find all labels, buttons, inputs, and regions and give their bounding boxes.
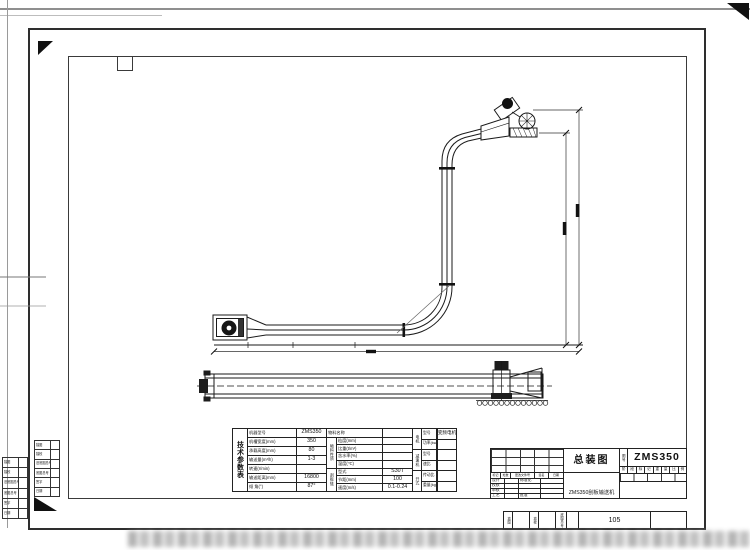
row-label: 型号: [422, 429, 436, 440]
blurred-watermark-strip: [128, 531, 750, 547]
reducer-group-label: 减速机: [413, 450, 421, 471]
table-row: 温度(℃): [337, 461, 412, 469]
sig-blank: [505, 489, 519, 493]
margin-row-label: 描图: [3, 458, 18, 467]
margin-row-label: 底图总号: [35, 469, 50, 477]
margin-row: 旧底图总号: [35, 460, 59, 469]
table-row: 承载高度(mm)80: [248, 447, 326, 456]
table-row: 输送距离(mm)16800: [248, 474, 326, 483]
tech-table-material-section: 物料名称 物料性质 刮板链 粒度(mm) 比重(t/m³) 含水率(%) 温度(…: [326, 429, 412, 491]
row-value: ZMS350: [296, 429, 326, 437]
sig-blank: [505, 479, 519, 483]
row-label: 输送量(m³/h): [248, 456, 296, 464]
margin-cell-blank: [651, 512, 686, 529]
rev-header-cell: 签名: [535, 473, 549, 478]
bottom-margin-strip: 描图 描校 底图总号 105: [503, 511, 687, 530]
chain-group-label: 刮板链: [327, 469, 336, 491]
sig-label: 工艺: [491, 494, 505, 498]
rev-header-cell: 更改文件号: [511, 473, 535, 478]
stage-mark-row: 阶 段 标 记 重 量 比 例: [620, 466, 686, 473]
margin-row: 底图总号: [35, 469, 59, 478]
row-value: 1-3: [296, 456, 326, 464]
row-value: [382, 445, 412, 452]
margin-row: 签字: [35, 478, 59, 487]
row-value: [382, 453, 412, 460]
margin-row-blank: [50, 441, 59, 449]
sig-label: 校核: [491, 484, 505, 488]
drive-group-labels: 电机 减速机 开式: [413, 429, 422, 491]
row-label: 温度(℃): [337, 461, 382, 468]
row-value: 87°: [296, 483, 326, 491]
open-drive-group-label: 开式: [413, 471, 421, 491]
margin-row: 日期: [35, 488, 59, 496]
margin-cell-blank: [513, 512, 530, 529]
sheet-number: 105: [579, 512, 651, 529]
dimension-lines: [211, 107, 583, 355]
sig-label: [519, 489, 541, 493]
rev-header-cell: 标记: [491, 473, 501, 478]
margin-row-blank: [18, 489, 27, 498]
sig-blank: [541, 494, 563, 498]
title-block-right: 图号 ZMS350 阶 段 标 记 重 量 比 例: [619, 449, 686, 498]
motor-group-label: 电机: [413, 429, 421, 450]
product-name: ZMS350刮板输送机: [564, 473, 619, 498]
row-label: 机器型号: [248, 429, 296, 437]
drive-chain: [476, 401, 548, 406]
drive-row-values: 变频电机: [437, 429, 456, 491]
title-block-blank-area: [620, 481, 686, 498]
title-block-middle: 总装图 ZMS350刮板输送机: [563, 449, 619, 498]
drawing-number: ZMS350: [628, 449, 686, 466]
sig-blank: [505, 484, 519, 488]
row-value: [438, 471, 456, 482]
margin-cell-label: 描图: [504, 512, 513, 529]
table-row: 输送量(m³/h)1-3: [248, 456, 326, 465]
drive-row-labels: 型号 功率(kw) 型号 速比 传动比 重量(kg): [422, 429, 437, 491]
row-value: 350: [296, 438, 326, 446]
margin-row: 签字: [3, 499, 27, 509]
row-value: [382, 429, 412, 437]
sig-label: 标准化: [519, 479, 541, 483]
margin-row-blank: [50, 460, 59, 468]
row-value: 80: [296, 447, 326, 455]
margin-row-blank: [18, 458, 27, 467]
revision-grid: [491, 449, 563, 473]
margin-row-label: 日期: [3, 509, 18, 518]
row-label: 承载高度(mm): [248, 447, 296, 455]
margin-cell-label: 描校: [530, 512, 539, 529]
margin-row: 描校: [3, 468, 27, 478]
row-value: [438, 450, 456, 461]
sig-label: [519, 484, 541, 488]
margin-cell-blank: [567, 512, 579, 529]
margin-row: 日期: [3, 509, 27, 518]
sig-blank: [505, 494, 519, 498]
table-row: 转速(r/min): [248, 465, 326, 474]
fold-mark-bottom-left: [34, 497, 57, 511]
table-row: 速度(m/s)0.1-0.24: [337, 484, 412, 491]
row-label: 重量(kg): [422, 482, 436, 492]
row-value: [438, 482, 456, 492]
margin-row-label: 描校: [35, 450, 50, 458]
row-value: [438, 440, 456, 451]
row-label: 型号: [422, 450, 436, 461]
row-value: 0.1-0.24: [382, 484, 412, 491]
margin-row-label: 描图: [35, 441, 50, 449]
table-row: 比重(t/m³): [337, 445, 412, 453]
row-value: [382, 461, 412, 468]
sig-blank: [541, 479, 563, 483]
tech-parameters-table: 技术参数表 机器型号ZMS350 机槽宽度(mm)350 承载高度(mm)80 …: [232, 428, 457, 492]
row-label: 比重(t/m³): [337, 445, 382, 452]
row-value: S30T: [382, 469, 412, 476]
margin-row: 描校: [35, 450, 59, 459]
margin-row: 描图: [35, 441, 59, 450]
material-group-label: 物料性质: [327, 438, 336, 469]
margin-row-blank: [50, 469, 59, 477]
margin-row-blank: [50, 450, 59, 458]
margin-row-label: 旧底图总号: [35, 460, 50, 468]
fold-mark-top-right: [727, 3, 749, 20]
sig-label: 设计: [491, 479, 505, 483]
sig-label: 审核: [491, 489, 505, 493]
scanned-assembly-drawing: { "tech_table": { "title": "技术参数表", "lef…: [0, 0, 750, 550]
table-row: 粒度(mm): [337, 438, 412, 446]
table-row: 节距(mm)100: [337, 476, 412, 484]
row-label: 传动比: [422, 471, 436, 482]
row-label: 速度(m/s): [337, 484, 382, 491]
row-label: 节距(mm): [337, 476, 382, 483]
dimension-text-marks: [366, 204, 579, 353]
row-label: 功率(kw): [422, 440, 436, 451]
table-row: 倾 角(°)87°: [248, 483, 326, 491]
discharge-chute: [481, 117, 509, 140]
table-row: 型式S30T: [337, 469, 412, 477]
trough-taper: [247, 317, 266, 338]
margin-cell-label: 底图总号: [556, 512, 567, 529]
sig-label: 批准: [519, 494, 541, 498]
rev-header-cell: 处数: [501, 473, 511, 478]
margin-row: 描图: [3, 458, 27, 468]
drive-head: [481, 97, 537, 140]
row-value: [382, 438, 412, 445]
signature-row: 工艺批准: [491, 494, 563, 498]
margin-row-blank: [18, 509, 27, 518]
margin-cell-blank: [539, 512, 556, 529]
row-label: 机槽宽度(mm): [248, 438, 296, 446]
margin-row-blank: [50, 478, 59, 486]
margin-row-blank: [18, 499, 27, 508]
material-rows: 物料性质 刮板链 粒度(mm) 比重(t/m³) 含水率(%) 温度(℃) 型式…: [327, 438, 412, 491]
left-margin-table-inner: 描图 描校 旧底图总号 底图总号 签字 日期: [34, 440, 60, 497]
table-row: 机槽宽度(mm)350: [248, 438, 326, 447]
tail-sprocket-hub: [227, 326, 232, 331]
row-label: 速比: [422, 461, 436, 472]
margin-row-label: 日期: [35, 488, 50, 496]
margin-row-blank: [50, 488, 59, 496]
drawing-title: 总装图: [564, 449, 619, 473]
row-label: 粒度(mm): [337, 438, 382, 445]
table-row: 含水率(%): [337, 453, 412, 461]
margin-row-blank: [18, 468, 27, 477]
motor-fan-cover: [502, 98, 513, 109]
table-row: 机器型号ZMS350: [248, 429, 326, 438]
fold-mark-top-left: [38, 41, 53, 55]
rev-header-cell: 日期: [549, 473, 563, 478]
drawing-number-label: 图号: [620, 449, 628, 466]
margin-row-label: 描校: [3, 468, 18, 477]
margin-row-label: 签字: [35, 478, 50, 486]
row-label: 型式: [337, 469, 382, 476]
margin-row-label: 底图总号: [3, 489, 18, 498]
row-label: 物料名称: [327, 429, 382, 437]
stage-empty-row: [620, 473, 686, 481]
row-value: [296, 465, 326, 473]
margin-row-label: 旧底图总号: [3, 478, 18, 487]
tech-table-title: 技术参数表: [233, 429, 248, 491]
material-chain-rows: 粒度(mm) 比重(t/m³) 含水率(%) 温度(℃) 型式S30T 节距(m…: [337, 438, 412, 491]
row-label: 倾 角(°): [248, 483, 296, 491]
trough-lines: [266, 123, 504, 335]
sig-blank: [541, 489, 563, 493]
sig-blank: [541, 484, 563, 488]
tech-table-left-section: 机器型号ZMS350 机槽宽度(mm)350 承载高度(mm)80 输送量(m³…: [248, 429, 326, 491]
signature-zone: 设计标准化 校核 审核 工艺批准: [491, 479, 563, 498]
main-view: [213, 97, 537, 340]
margin-row-blank: [18, 478, 27, 487]
left-margin-table-outer: 描图 描校 旧底图总号 底图总号 签字 日期: [2, 457, 28, 519]
row-label: 含水率(%): [337, 453, 382, 460]
title-block-revision-area: 标记 处数 更改文件号 签名 日期 设计标准化 校核 审核 工艺批准: [491, 449, 563, 498]
drawing-number-row: 图号 ZMS350: [620, 449, 686, 466]
row-value: 变频电机: [438, 429, 456, 440]
row-label: 输送距离(mm): [248, 474, 296, 482]
plan-view: [197, 361, 552, 405]
row-value: 100: [382, 476, 412, 483]
margin-row: 底图总号: [3, 489, 27, 499]
margin-row: 旧底图总号: [3, 478, 27, 488]
centering-marks: [0, 277, 46, 306]
tech-table-drive-section: 电机 减速机 开式 型号 功率(kw) 型号 速比 传动比 重量(kg) 变频电…: [412, 429, 456, 491]
group-labels: 物料性质 刮板链: [327, 438, 337, 491]
row-value: 16800: [296, 474, 326, 482]
margin-row-label: 签字: [3, 499, 18, 508]
row-label: 转速(r/min): [248, 465, 296, 473]
table-row: 物料名称: [327, 429, 412, 438]
row-value: [438, 461, 456, 472]
title-block: 标记 处数 更改文件号 签名 日期 设计标准化 校核 审核 工艺批准 总装图 Z…: [490, 448, 687, 499]
